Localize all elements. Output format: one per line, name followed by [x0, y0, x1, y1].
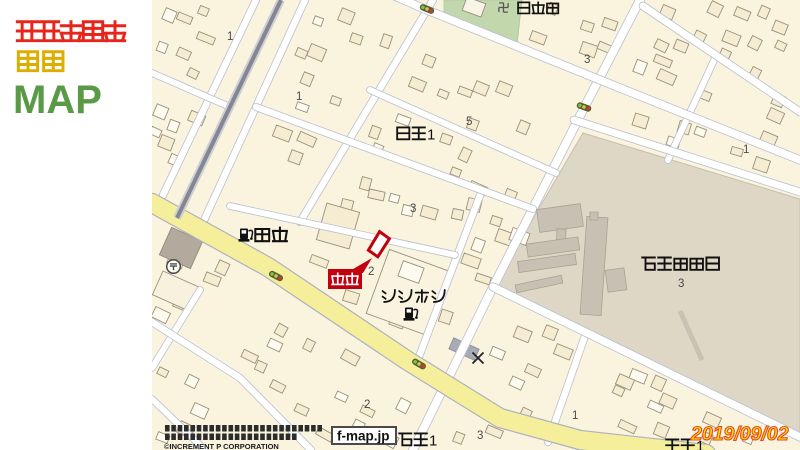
svg-text:2: 2: [364, 399, 370, 411]
svg-text:3: 3: [584, 54, 590, 66]
svg-text:1: 1: [227, 31, 233, 43]
svg-text:MAP: MAP: [13, 78, 102, 122]
svg-text:2019/09/02: 2019/09/02: [690, 423, 789, 445]
svg-text:1: 1: [296, 91, 302, 103]
svg-text:1: 1: [429, 433, 437, 450]
svg-text:3: 3: [477, 430, 483, 442]
svg-text:©INCREMENT P CORPORATION: ©INCREMENT P CORPORATION: [164, 442, 279, 450]
svg-text:3: 3: [410, 203, 416, 215]
svg-text:f-map.jp: f-map.jp: [337, 429, 390, 444]
svg-text:5: 5: [466, 116, 472, 128]
svg-text:1: 1: [572, 410, 578, 422]
svg-text:1: 1: [743, 144, 749, 156]
svg-text:3: 3: [678, 278, 684, 290]
svg-text:1: 1: [427, 127, 435, 144]
svg-text:2: 2: [368, 266, 374, 278]
